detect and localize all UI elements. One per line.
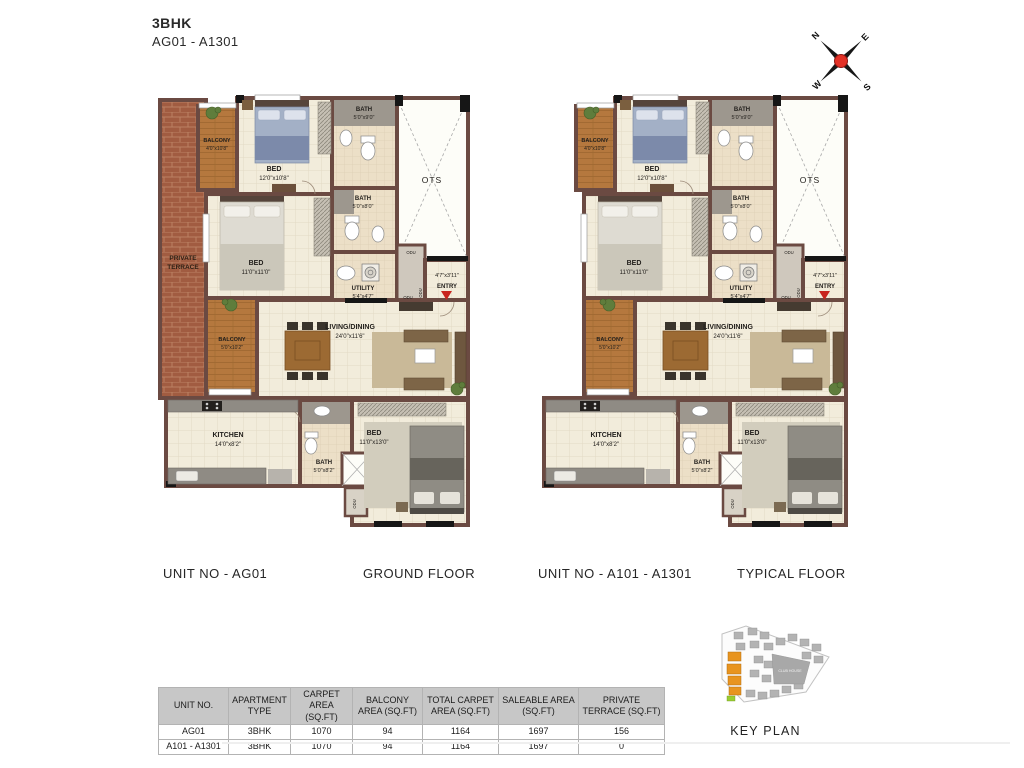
floor-plan: BALCONY 4'0"x10'8" BED 12'0"x10'8" BATH … [530, 92, 850, 532]
key-plan-label: KEY PLAN [703, 724, 828, 738]
bed-2-dim: 11'0"x11'0" [242, 270, 271, 276]
window [581, 214, 587, 262]
page-title-block: 3BHK AG01 - A1301 [152, 14, 238, 50]
area-table: UNIT NO.APARTMENT TYPECARPET AREA (SQ.FT… [158, 687, 665, 755]
balcony-1-label: BALCONY [581, 138, 609, 144]
area-table-wrap: UNIT NO.APARTMENT TYPECARPET AREA (SQ.FT… [158, 687, 664, 755]
page-subtitle: AG01 - A1301 [152, 33, 238, 51]
bath-1-dim: 5'0"x9'0" [732, 115, 753, 121]
column [773, 95, 781, 106]
bath-2-shower-zone [334, 190, 354, 214]
bed-2-label: BED [249, 260, 264, 267]
unit-label-a101: UNIT NO - A101 - A1301 [538, 566, 692, 581]
bath-2-label: BATH [355, 196, 371, 202]
bath-1-shower-zone [712, 100, 773, 126]
table-cell: 156 [579, 724, 665, 739]
table-header-cell: UNIT NO. [159, 688, 229, 725]
bed-1-label: BED [267, 166, 282, 173]
bath-2-dim: 5'0"x8'0" [731, 204, 752, 210]
odu-label: ODU [730, 499, 735, 508]
table-cell: AG01 [159, 724, 229, 739]
window [209, 389, 251, 395]
table-cell: 1164 [423, 724, 499, 739]
balcony-2-label: BALCONY [596, 337, 624, 343]
bed-3-label: BED [367, 430, 382, 437]
kitchen-dim: 14'0"x8'2" [215, 442, 241, 448]
bath-3-dim: 5'0"x8'2" [314, 468, 335, 474]
kitchen-label: KITCHEN [212, 432, 243, 439]
odu-label: ODU [784, 250, 793, 255]
table-header-cell: CARPET AREA (SQ.FT) [291, 688, 353, 725]
table-header-cell: PRIVATE TERRACE (SQ.FT) [579, 688, 665, 725]
balcony-1-dim: 4'0"x10'8" [584, 146, 606, 152]
balcony-2-dim: 5'0"x10'2" [221, 345, 243, 351]
utility-label: UTILITY [352, 286, 375, 292]
bath-2-dim: 5'0"x8'0" [353, 204, 374, 210]
footer-divider [222, 742, 1010, 744]
bed-1-dim: 12'0"x10'8" [259, 176, 289, 182]
table-cell: 94 [353, 724, 423, 739]
area-table-body: AG013BHK10709411641697156A101 - A13013BH… [159, 724, 665, 754]
key-plan-green-block [727, 696, 735, 701]
bath-1-shower-zone [334, 100, 395, 126]
utility-dim: 5'4"x4'7" [353, 294, 374, 300]
bed-3-label: BED [745, 430, 760, 437]
lintel [427, 256, 468, 261]
bath-1-dim: 5'0"x9'0" [354, 115, 375, 121]
bath-1-label: BATH [356, 107, 372, 113]
bath-1-label: BATH [734, 107, 750, 113]
utility-label: UTILITY [730, 286, 753, 292]
table-row: AG013BHK10709411641697156 [159, 724, 665, 739]
column [395, 95, 403, 106]
bed-3-dim: 11'0"x13'0" [737, 440, 766, 446]
typical-floor-plan: BALCONY 4'0"x10'8" BED 12'0"x10'8" BATH … [530, 92, 850, 532]
ots-label: OTS [800, 175, 820, 185]
bath-2-shower-zone [712, 190, 732, 214]
living-label: LIVING/DINING [325, 324, 375, 331]
ots-label: OTS [422, 175, 442, 185]
table-cell: 1697 [499, 724, 579, 739]
table-header-cell: APARTMENT TYPE [229, 688, 291, 725]
odu-label: ODU [403, 295, 412, 300]
compass-rose: N E S W [798, 16, 884, 102]
window-dark [804, 521, 832, 527]
floor-plan: PRIVATE TERRACE [152, 92, 472, 532]
ground-floor-plan: PRIVATE TERRACE [152, 92, 472, 532]
compass-s: S [862, 82, 873, 93]
bath-3-label: BATH [316, 460, 332, 466]
bed-2-dim: 11'0"x11'0" [620, 270, 649, 276]
balcony-2-dim: 5'0"x10'2" [599, 345, 621, 351]
floor-label-typical: TYPICAL FLOOR [737, 566, 846, 581]
entry-dim: 4'7"x3'11" [435, 273, 459, 279]
private-terrace-label-1: PRIVATE [169, 255, 197, 262]
balcony-1-label: BALCONY [203, 138, 231, 144]
entry-label: ENTRY [815, 284, 835, 290]
bath-3-label: BATH [694, 460, 710, 466]
window-dark [374, 521, 402, 527]
living-dim: 24'0"x11'6" [335, 334, 364, 340]
column [460, 95, 470, 112]
compass-n: N [810, 30, 822, 42]
living-dim: 24'0"x11'6" [713, 334, 742, 340]
table-header-cell: BALCONY AREA (SQ.FT) [353, 688, 423, 725]
lintel [805, 256, 846, 261]
living-label: LIVING/DINING [703, 324, 753, 331]
floor-label-ground: GROUND FLOOR [363, 566, 475, 581]
window-dark [752, 521, 780, 527]
balcony-2-label: BALCONY [218, 337, 246, 343]
utility-dim: 5'4"x4'7" [731, 294, 752, 300]
odu-label: ODU [796, 288, 801, 297]
key-plan-clubhouse-label: CLUB HOUSE [778, 669, 802, 673]
kitchen-dim: 14'0"x8'2" [593, 442, 619, 448]
area-table-header: UNIT NO.APARTMENT TYPECARPET AREA (SQ.FT… [159, 688, 665, 725]
table-header-cell: SALEABLE AREA (SQ.FT) [499, 688, 579, 725]
table-cell: 1070 [291, 724, 353, 739]
private-terrace-label-2: TERRACE [167, 264, 199, 271]
kitchen-label: KITCHEN [590, 432, 621, 439]
bed-1-dim: 12'0"x10'8" [637, 176, 667, 182]
table-cell: 3BHK [229, 724, 291, 739]
entry-label: ENTRY [437, 284, 457, 290]
entry-dim: 4'7"x3'11" [813, 273, 837, 279]
bath-2-label: BATH [733, 196, 749, 202]
odu-label: ODU [781, 295, 790, 300]
window [203, 214, 209, 262]
bed-1-label: BED [645, 166, 660, 173]
odu-label: ODU [418, 288, 423, 297]
key-plan-highlighted-tower [727, 652, 741, 695]
unit-label-ag01: UNIT NO - AG01 [163, 566, 267, 581]
table-header-cell: TOTAL CARPET AREA (SQ.FT) [423, 688, 499, 725]
window-dark [426, 521, 454, 527]
odu-label: ODU [352, 499, 357, 508]
odu-label: ODU [406, 250, 415, 255]
bed-2-label: BED [627, 260, 642, 267]
table-cell: A101 - A1301 [159, 739, 229, 754]
column [838, 95, 848, 112]
bath-3-dim: 5'0"x8'2" [692, 468, 713, 474]
bed-3-dim: 11'0"x13'0" [359, 440, 388, 446]
window [587, 389, 629, 395]
page-title: 3BHK [152, 14, 238, 33]
balcony-1-dim: 4'0"x10'8" [206, 146, 228, 152]
key-plan: CLUB HOUSE [698, 612, 873, 724]
